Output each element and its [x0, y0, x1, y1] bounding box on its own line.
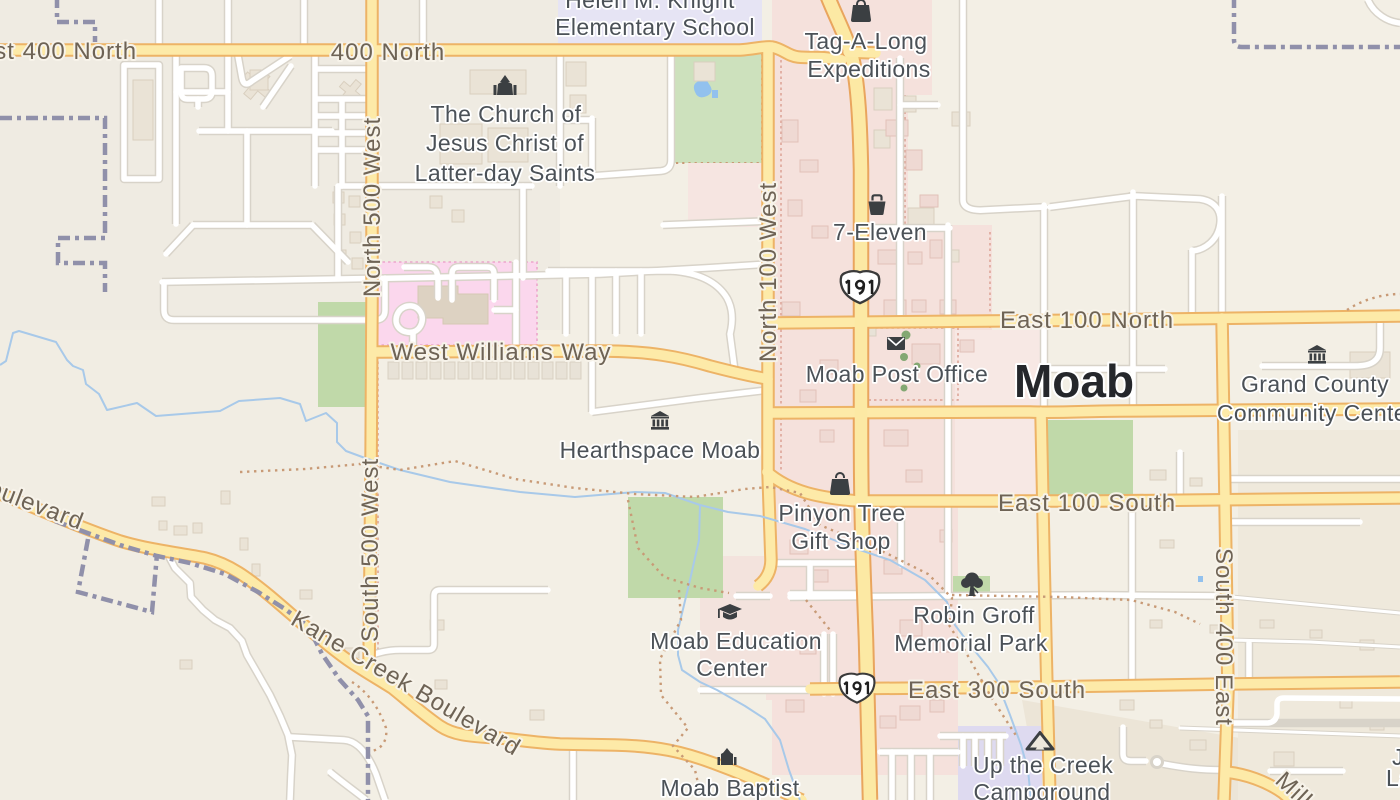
svg-text:South 400 East: South 400 East [1210, 548, 1237, 726]
svg-text:400 North: 400 North [331, 39, 445, 66]
svg-text:Moab Education: Moab Education [650, 628, 822, 654]
svg-text:Latter-day Saints: Latter-day Saints [415, 160, 596, 186]
svg-text:Pinyon Tree: Pinyon Tree [778, 500, 905, 526]
svg-text:Lar: Lar [1386, 765, 1400, 791]
svg-text:Gift Shop: Gift Shop [791, 528, 891, 554]
svg-text:East 100 South: East 100 South [998, 490, 1176, 517]
svg-text:North 500 West: North 500 West [359, 117, 386, 297]
svg-text:East 100 North: East 100 North [1000, 307, 1174, 334]
svg-text:East 300 South: East 300 South [908, 677, 1086, 704]
svg-text:West Williams Way: West Williams Way [391, 339, 612, 366]
svg-text:North 100 West: North 100 West [755, 182, 782, 362]
svg-text:Jesus Christ of: Jesus Christ of [426, 130, 584, 156]
svg-text:East 400 North: East 400 North [0, 38, 137, 65]
svg-text:Center: Center [696, 655, 767, 681]
svg-text:Memorial Park: Memorial Park [894, 630, 1048, 656]
svg-text:7-Eleven: 7-Eleven [833, 219, 927, 245]
svg-text:Up the Creek: Up the Creek [973, 752, 1113, 778]
svg-text:Grand County: Grand County [1241, 371, 1389, 397]
svg-text:Moab Baptist: Moab Baptist [660, 775, 799, 800]
svg-text:Moab: Moab [1014, 355, 1134, 407]
svg-text:Elementary School: Elementary School [555, 14, 755, 40]
svg-text:Community Center: Community Center [1217, 400, 1400, 426]
svg-text:Helen M. Knight: Helen M. Knight [565, 0, 735, 13]
svg-text:Robin Groff: Robin Groff [913, 602, 1035, 628]
svg-text:Hearthspace Moab: Hearthspace Moab [560, 437, 761, 463]
svg-text:The Church of: The Church of [431, 101, 582, 127]
svg-text:Tag-A-Long: Tag-A-Long [805, 28, 928, 54]
svg-text:Expeditions: Expeditions [807, 56, 930, 82]
svg-text:South 500 West: South 500 West [357, 458, 384, 642]
svg-text:Campground: Campground [974, 779, 1111, 800]
svg-text:Moab Post Office: Moab Post Office [806, 361, 988, 387]
